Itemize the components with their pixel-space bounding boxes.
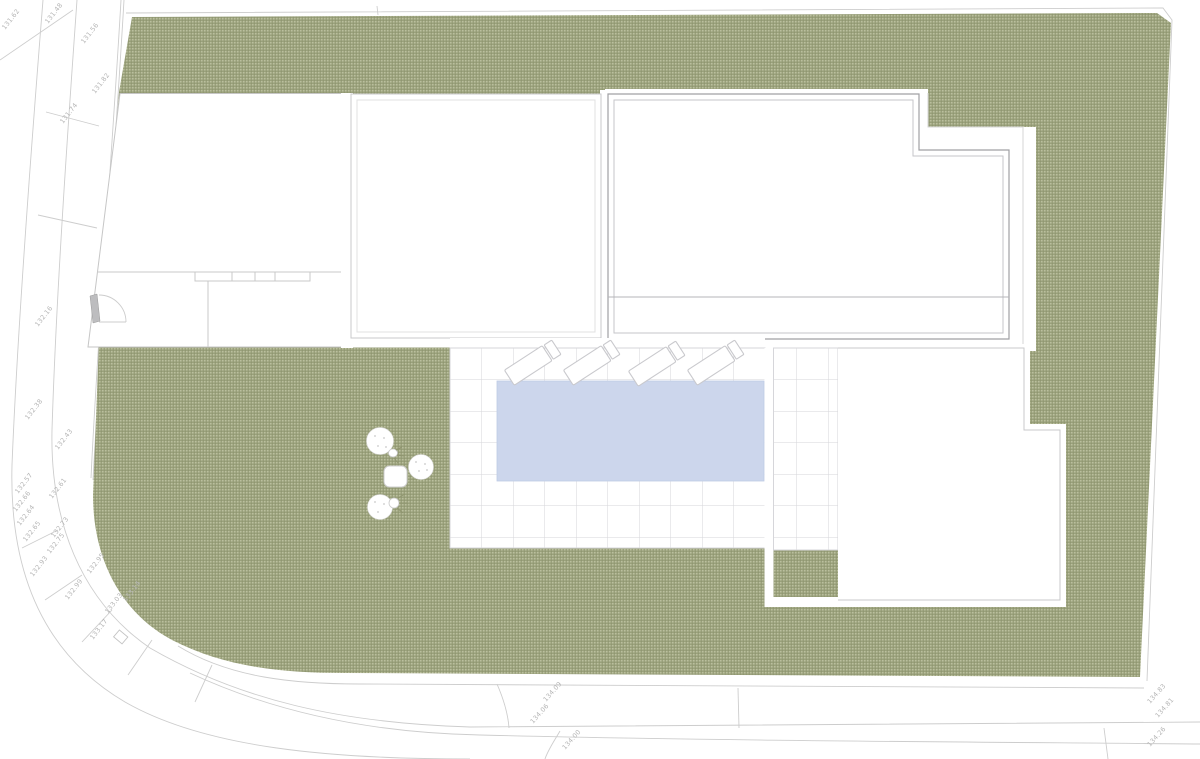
tree-symbol-3 <box>368 495 393 520</box>
elevation-label: 132.43 <box>53 427 74 451</box>
elevation-label: 132.95 <box>85 551 106 575</box>
road-connector-2 <box>545 731 560 759</box>
site-plan-drawing: 131.48 131.62 131.56 131.82 131.74 132.1… <box>0 0 1200 759</box>
tree-symbol-2 <box>409 455 434 480</box>
plot-tick-2 <box>38 215 97 228</box>
elevation-label: 132.38 <box>23 397 44 421</box>
elevation-label: 131.82 <box>90 71 111 95</box>
road-connector-1 <box>497 684 509 728</box>
elevation-label: 132.61 <box>47 476 68 500</box>
elevation-label: 131.48 <box>43 1 64 25</box>
elevation-label: 132.93 <box>28 554 49 578</box>
elevation-label: 133.03 <box>103 591 124 615</box>
elevation-label: 134.81 <box>1154 696 1176 719</box>
plot-tick-7 <box>195 665 212 702</box>
planter-margin <box>774 597 839 607</box>
shrub-symbol-2 <box>389 498 399 508</box>
south-strip <box>342 337 456 348</box>
elevation-label: 134.09 <box>542 680 564 703</box>
swimming-pool <box>497 381 764 481</box>
garden-table <box>384 466 407 487</box>
vegetation-notch-patch <box>948 89 1018 122</box>
elevation-label: 131.62 <box>0 7 21 31</box>
elevation-label: 133.17 <box>88 617 109 641</box>
elevation-label: 132.16 <box>33 304 54 328</box>
elevation-label: 131.56 <box>79 21 100 45</box>
manhole-symbol <box>114 630 128 644</box>
building-middle <box>351 94 601 338</box>
building-left <box>88 94 342 348</box>
plot-tick-top-small <box>377 6 378 15</box>
elevation-label: 134.26 <box>1146 725 1168 748</box>
road-connector-3 <box>738 688 739 728</box>
site-plan-canvas: 131.48 131.62 131.56 131.82 131.74 132.1… <box>0 0 1200 759</box>
building-left-threshold <box>195 272 310 281</box>
terrace-gap-path <box>765 348 774 607</box>
plot-tick-6 <box>128 640 152 675</box>
elevation-label: 134.00 <box>561 728 583 751</box>
elevation-label: 134.06 <box>529 702 551 725</box>
